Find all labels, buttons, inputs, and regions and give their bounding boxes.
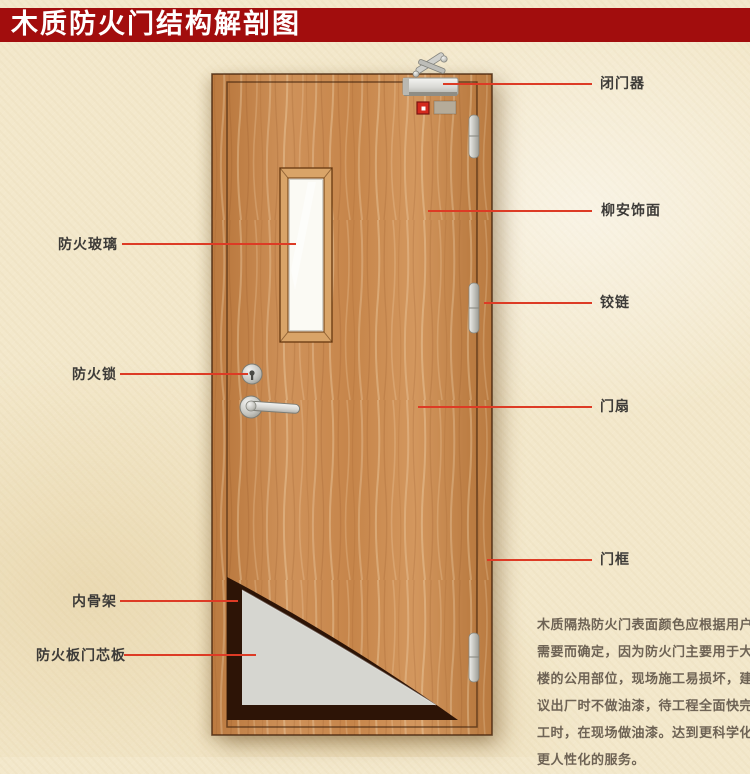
description-line: 更人性化的服务。 bbox=[537, 747, 750, 774]
fire-door-illustration bbox=[190, 40, 510, 750]
description-line: 需要而确定，因为防火门主要用于大 bbox=[537, 639, 750, 666]
label-inner-skeleton: 内骨架 bbox=[72, 592, 117, 612]
hinge-bottom bbox=[469, 633, 479, 682]
description-line: 木质隔热防火门表面颜色应根据用户 bbox=[537, 612, 750, 639]
leader-fire-glass bbox=[122, 243, 296, 245]
label-veneer: 柳安饰面 bbox=[601, 201, 661, 221]
label-door-closer: 闭门器 bbox=[600, 74, 645, 94]
mounting-plate bbox=[434, 101, 456, 114]
leader-inner-skeleton bbox=[120, 600, 238, 602]
label-door-leaf: 门扇 bbox=[600, 397, 630, 417]
label-fire-glass: 防火玻璃 bbox=[58, 235, 118, 255]
leader-veneer bbox=[428, 210, 592, 212]
leader-fire-core-board bbox=[124, 654, 256, 656]
description-text: 木质隔热防火门表面颜色应根据用户需要而确定，因为防火门主要用于大楼的公用部位，现… bbox=[537, 612, 750, 774]
label-fire-lock: 防火锁 bbox=[72, 365, 117, 385]
label-hinge: 铰链 bbox=[600, 293, 630, 313]
fire-glass-window bbox=[280, 168, 332, 342]
hinge-top bbox=[469, 115, 479, 158]
description-line: 楼的公用部位，现场施工易损坏，建 bbox=[537, 666, 750, 693]
leader-door-leaf bbox=[418, 406, 592, 408]
description-line: 工时，在现场做油漆。达到更科学化 bbox=[537, 720, 750, 747]
description-line: 议出厂时不做油漆，待工程全面快完 bbox=[537, 693, 750, 720]
leader-fire-lock bbox=[120, 373, 248, 375]
label-door-frame: 门框 bbox=[600, 550, 630, 570]
title-banner: 木质防火门结构解剖图 bbox=[0, 8, 750, 42]
leader-door-frame bbox=[487, 559, 592, 561]
hinge-middle bbox=[469, 283, 479, 333]
alarm-indicator bbox=[417, 102, 429, 114]
page-title: 木质防火门结构解剖图 bbox=[0, 8, 301, 42]
label-fire-core-board: 防火板门芯板 bbox=[36, 646, 126, 666]
leader-door-closer bbox=[443, 83, 592, 85]
leader-hinge bbox=[484, 302, 592, 304]
